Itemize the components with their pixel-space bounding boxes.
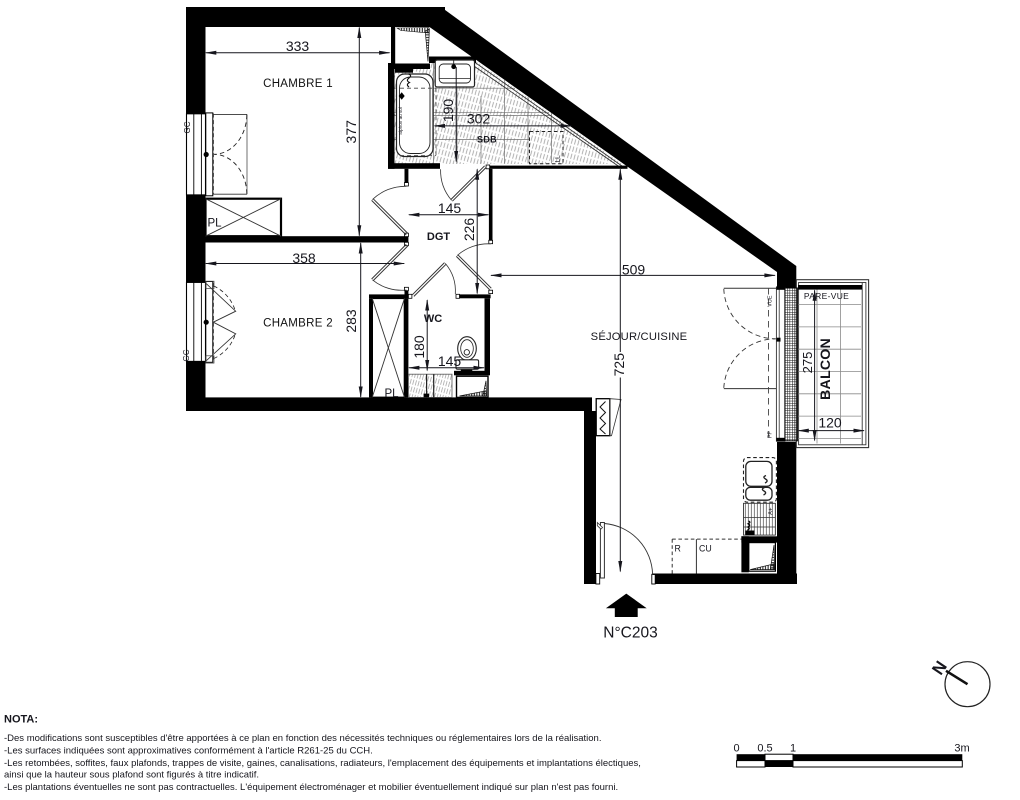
svg-text:CHAMBRE 2: CHAMBRE 2: [263, 318, 333, 330]
svg-text:-Des modifications sont suscep: -Des modifications sont susceptibles d'ê…: [4, 733, 601, 744]
svg-text:1: 1: [790, 743, 796, 755]
svg-text:275: 275: [800, 352, 815, 374]
svg-text:0.5: 0.5: [757, 743, 772, 755]
svg-text:WC: WC: [424, 313, 442, 325]
svg-text:226: 226: [461, 218, 477, 242]
svg-text:SDB: SDB: [477, 134, 497, 144]
svg-text:DGT: DGT: [427, 231, 451, 243]
svg-text:GC: GC: [182, 349, 191, 361]
svg-text:PL: PL: [385, 388, 400, 400]
svg-text:377: 377: [343, 120, 359, 144]
svg-text:CHAMBRE 1: CHAMBRE 1: [263, 78, 333, 90]
svg-text:GC: GC: [183, 121, 192, 133]
svg-text:-Les retombées, soffites, faux: -Les retombées, soffites, faux plafonds,…: [4, 758, 641, 769]
svg-text:145: 145: [438, 353, 462, 369]
svg-text:N°C203: N°C203: [603, 625, 657, 642]
svg-text:725: 725: [611, 353, 627, 377]
svg-text:R: R: [675, 544, 681, 554]
svg-text:302: 302: [467, 111, 491, 127]
svg-text:509: 509: [622, 262, 646, 278]
svg-text:333: 333: [286, 38, 310, 54]
svg-text:PL: PL: [208, 218, 223, 230]
svg-text:A+: A+: [769, 507, 775, 515]
svg-text:CU: CU: [699, 544, 712, 554]
svg-text:283: 283: [343, 309, 359, 333]
svg-text:Siphon au sol: Siphon au sol: [398, 107, 403, 135]
svg-text:BALCON: BALCON: [818, 338, 834, 400]
svg-text:120: 120: [818, 414, 842, 430]
svg-text:ainsi que la hauteur sous plaf: ainsi que la hauteur sous plafond sont f…: [4, 770, 259, 781]
svg-text:358: 358: [292, 250, 316, 266]
svg-text:145: 145: [438, 200, 462, 216]
svg-text:VUE: VUE: [768, 295, 774, 307]
svg-text:0: 0: [734, 743, 740, 755]
svg-text:LL: LL: [555, 155, 562, 163]
svg-text:3m: 3m: [954, 743, 969, 755]
svg-text:NOTA:: NOTA:: [4, 714, 38, 726]
svg-text:-Les surfaces indiquées sont a: -Les surfaces indiquées sont approximati…: [4, 746, 373, 757]
svg-text:180: 180: [411, 335, 427, 359]
svg-text:PARE-VUE: PARE-VUE: [804, 291, 849, 301]
svg-text:SÉJOUR/CUISINE: SÉJOUR/CUISINE: [591, 330, 688, 343]
svg-text:PF: PF: [768, 431, 774, 439]
svg-text:190: 190: [440, 99, 456, 123]
svg-text:-Les plantations éventuelles n: -Les plantations éventuelles ne sont pas…: [4, 782, 618, 793]
